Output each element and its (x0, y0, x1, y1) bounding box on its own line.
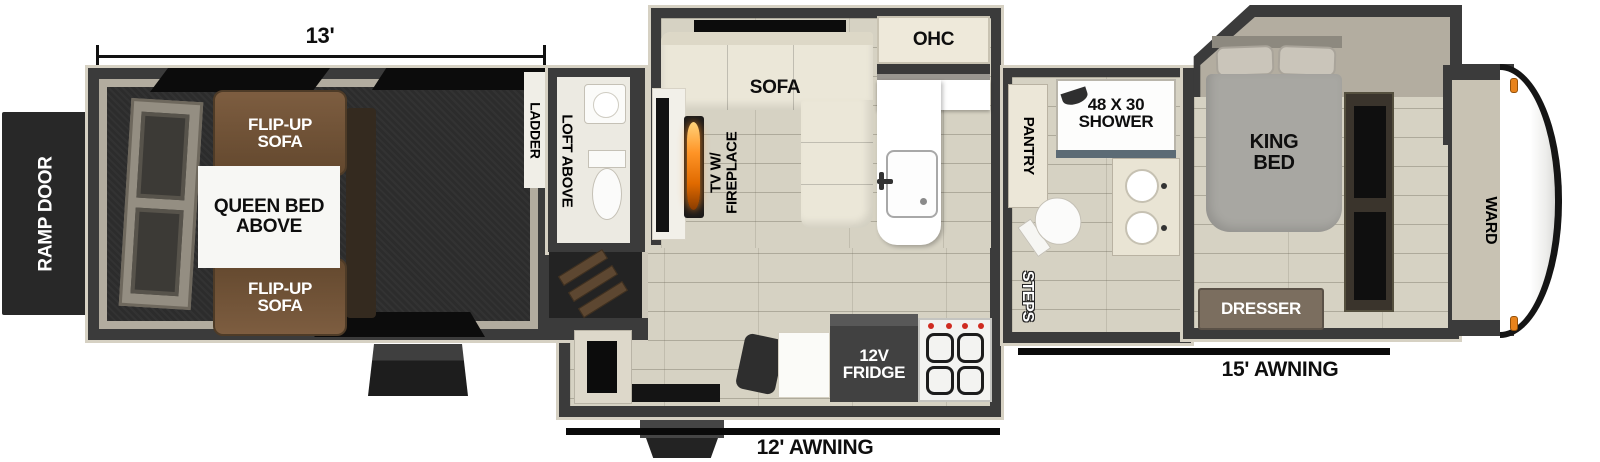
tv-fireplace-label: TV W/ FIREPLACE (708, 132, 740, 214)
vanity-faucet (1161, 183, 1167, 189)
tv-lower (1354, 212, 1386, 300)
awning-12-label: 12' AWNING (705, 437, 925, 459)
stairs-to-garage (549, 252, 648, 320)
tv-fireplace-label-wrap: TV W/ FIREPLACE (698, 106, 750, 240)
garage-window-top-left (150, 68, 330, 92)
loft-sink-basin (593, 92, 619, 118)
front-cap (1500, 64, 1562, 338)
awning-15-line (1018, 348, 1390, 355)
flip-up-sofa-bottom: FLIP-UP SOFA (213, 258, 347, 336)
fridge: 12V FRIDGE (830, 314, 918, 402)
burner (957, 333, 985, 363)
awning-15-label: 15' AWNING (1160, 358, 1400, 382)
stove-knob (978, 323, 984, 329)
ladder-label: LADDER (528, 102, 543, 159)
vanity-faucet (1161, 225, 1167, 231)
vanity-sink (1125, 169, 1159, 203)
desk (778, 332, 830, 398)
dresser: DRESSER (1198, 288, 1324, 330)
door-window-bottom (130, 207, 183, 296)
pillow-right (1277, 45, 1336, 77)
loft-toilet-bowl (592, 168, 622, 220)
entry-door-window (587, 341, 617, 393)
sofa-label: SOFA (705, 76, 845, 100)
door-window-top (136, 112, 189, 201)
pantry-label: PANTRY (1020, 117, 1036, 175)
stove (918, 318, 992, 402)
loft-above-label: LOFT ABOVE (559, 114, 575, 207)
awning-12-line (566, 428, 1000, 435)
kitchen-sink (886, 150, 938, 218)
entry-landing-mat (632, 384, 720, 402)
burner (926, 366, 954, 396)
tv-upper (1354, 106, 1386, 198)
entry-door-wall (574, 330, 632, 404)
overhead-cabinet: OHC (877, 16, 990, 64)
ward-label: WARD (1482, 196, 1499, 244)
marker-light-top (1510, 78, 1518, 93)
marker-light-bottom (1510, 316, 1518, 331)
garage-entry-step (368, 344, 468, 396)
rv-floorplan: 13' RAMP DOOR FLIP-UP SOFA FLIP-UP SOFA … (0, 0, 1600, 462)
vanity-sink (1125, 211, 1159, 245)
queen-bed-above: QUEEN BED ABOVE (198, 166, 340, 268)
shower-label: 48 X 30 SHOWER (1060, 90, 1172, 136)
ramp-door-label: RAMP DOOR (37, 156, 57, 271)
burner (926, 333, 954, 363)
flip-up-sofa-top: FLIP-UP SOFA (213, 90, 347, 176)
ramp-door: RAMP DOOR (2, 112, 92, 315)
sink-faucet-base (879, 172, 884, 190)
open-ramp-door-panel (119, 98, 204, 310)
pantry: PANTRY (1008, 84, 1048, 208)
sink-drain (920, 198, 927, 205)
sofa-back-edge (661, 32, 873, 45)
sofa-base-strip (346, 108, 376, 318)
stove-grate (926, 333, 984, 395)
loft-toilet-tank (588, 150, 626, 168)
ladder: LADDER (524, 72, 546, 188)
pillow-left (1215, 45, 1274, 77)
vanity (1112, 158, 1180, 256)
stove-knob (946, 323, 952, 329)
king-bed: KING BED (1206, 74, 1342, 232)
steps-label: STEPS (1018, 271, 1035, 322)
steps-label-wrap: STEPS (1012, 256, 1040, 336)
burner (957, 366, 985, 396)
shower-glass (1056, 150, 1176, 158)
entertainment-center (1344, 92, 1394, 312)
dimension-line (98, 55, 545, 58)
loft-bath-sink (584, 84, 626, 124)
sofa-sectional-chaise (801, 100, 873, 228)
ohc-underside (877, 64, 990, 74)
stove-knob (962, 323, 968, 329)
loft-above-label-wrap: LOFT ABOVE (555, 86, 579, 236)
stove-knob (928, 323, 934, 329)
sofa-seam (801, 142, 873, 143)
sofa-seam (801, 184, 873, 185)
tv-screen (656, 98, 669, 232)
dimension-label: 13' (260, 24, 380, 48)
